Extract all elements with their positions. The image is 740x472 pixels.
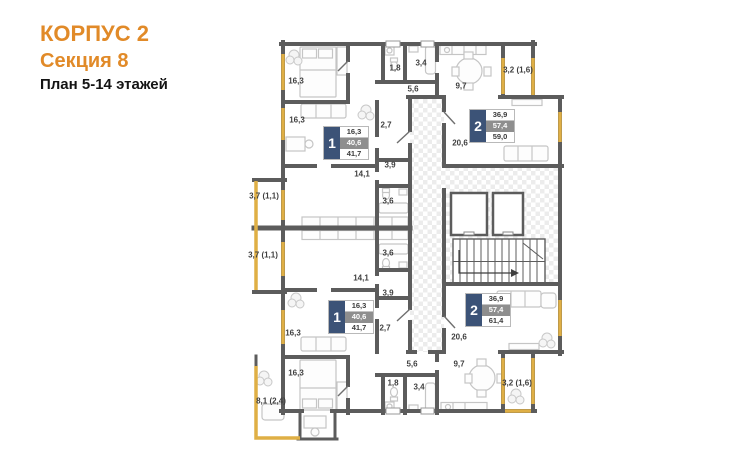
room-area-label: 20,6 xyxy=(451,333,467,342)
apartment-number-badge: 2 xyxy=(466,294,482,326)
kitchen-counter-apt1-top xyxy=(302,217,408,226)
room-area-label: 3,7 (1,1) xyxy=(248,251,278,260)
apartment-1-bottom-info[interactable]: 1 16,3 40,6 41,7 xyxy=(329,301,373,333)
living-area-value: 36,9 xyxy=(486,110,514,121)
apartment-areas: 16,3 40,6 41,7 xyxy=(340,127,368,159)
elevator-shafts xyxy=(451,193,523,235)
staircase-icon xyxy=(453,239,545,284)
apartment-1-top-info[interactable]: 1 16,3 40,6 41,7 xyxy=(324,127,368,159)
room-area-label: 3,7 (1,1) xyxy=(249,192,279,201)
apartment-areas: 16,3 40,6 41,7 xyxy=(345,301,373,333)
room-area-label: 16,3 xyxy=(288,369,304,378)
apartment-areas: 36,9 57,4 61,4 xyxy=(482,294,510,326)
bath-fixtures-1-8-bottom xyxy=(385,388,398,412)
room-area-label: 14,1 xyxy=(353,274,369,283)
room-area-label: 9,7 xyxy=(455,82,466,91)
sofa-living-bottom xyxy=(301,337,346,351)
sofa-living-top xyxy=(301,104,346,118)
room-area-label: 3,6 xyxy=(382,197,393,206)
floor-area-value: 57,4 xyxy=(486,121,514,132)
room-area-label: 1,8 xyxy=(389,64,400,73)
bed-bottom xyxy=(300,360,336,410)
room-area-label: 2,7 xyxy=(380,121,391,130)
kitchen-counter-apt1-bottom xyxy=(302,231,408,240)
floor-plan-page: КОРПУС 2 Секция 8 План 5-14 этажей xyxy=(0,0,740,472)
apartment-number-badge: 1 xyxy=(324,127,340,159)
room-area-label: 8,1 (2,4) xyxy=(256,397,286,406)
total-area-value: 59,0 xyxy=(486,132,514,142)
apartment-2-top-info[interactable]: 2 36,9 57,4 59,0 xyxy=(470,110,514,142)
desk-top xyxy=(286,137,313,151)
total-area-value: 41,7 xyxy=(340,149,368,159)
room-area-label: 16,3 xyxy=(285,329,301,338)
room-area-label: 14,1 xyxy=(354,170,370,179)
floor-area-value: 40,6 xyxy=(345,312,373,323)
room-area-label: 3,4 xyxy=(415,59,426,68)
room-area-label: 1,8 xyxy=(387,379,398,388)
room-area-label: 3,9 xyxy=(384,161,395,170)
room-area-label: 3,2 (1,6) xyxy=(502,379,532,388)
floor-plan-drawing xyxy=(0,0,740,472)
dining-table-bottom xyxy=(465,359,504,397)
floor-area-value: 40,6 xyxy=(340,138,368,149)
apartment-2-bottom-info[interactable]: 2 36,9 57,4 61,4 xyxy=(466,294,510,326)
living-area-value: 16,3 xyxy=(345,301,373,312)
apartment-number-badge: 1 xyxy=(329,301,345,333)
room-area-label: 16,3 xyxy=(288,77,304,86)
bed-top xyxy=(300,47,336,97)
floor-area-value: 57,4 xyxy=(482,305,510,316)
room-area-label: 5,6 xyxy=(407,85,418,94)
room-area-label: 3,6 xyxy=(382,249,393,258)
tv-stand-bottom xyxy=(509,344,539,350)
room-area-label: 3,4 xyxy=(413,383,424,392)
room-area-label: 3,9 xyxy=(382,289,393,298)
room-area-label: 5,6 xyxy=(406,360,417,369)
apartment-areas: 36,9 57,4 59,0 xyxy=(486,110,514,142)
room-area-label: 2,7 xyxy=(379,324,390,333)
room-area-label: 3,2 (1,6) xyxy=(503,66,533,75)
total-area-value: 61,4 xyxy=(482,316,510,326)
room-area-label: 9,7 xyxy=(453,360,464,369)
desk-alcove xyxy=(304,416,326,436)
total-area-value: 41,7 xyxy=(345,323,373,333)
sofa-apt2-top xyxy=(504,146,548,161)
living-area-value: 16,3 xyxy=(340,127,368,138)
apartment-number-badge: 2 xyxy=(470,110,486,142)
tv-stand-top xyxy=(512,100,542,106)
room-area-label: 20,6 xyxy=(452,139,468,148)
living-area-value: 36,9 xyxy=(482,294,510,305)
kitchen-counter-top xyxy=(440,46,486,55)
room-area-label: 16,3 xyxy=(289,116,305,125)
